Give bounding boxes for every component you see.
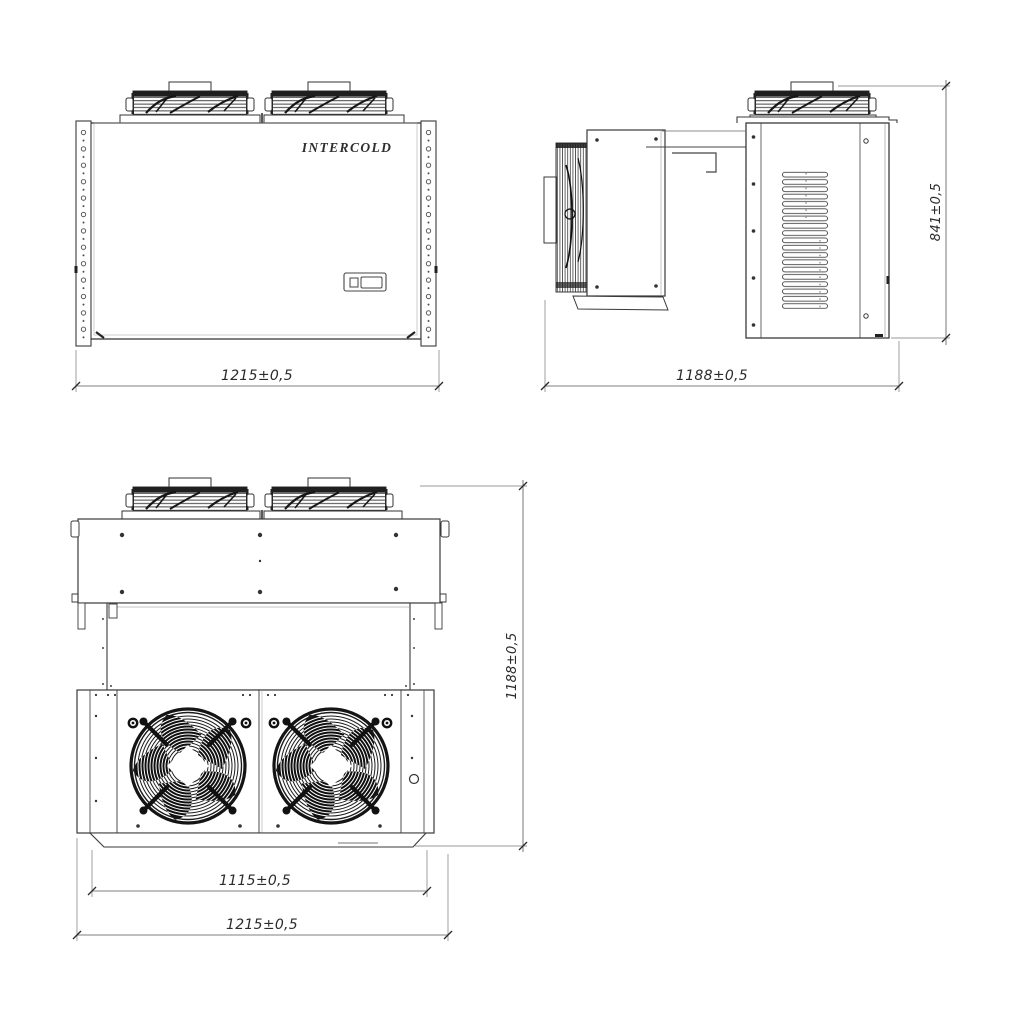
control-panel (344, 273, 386, 291)
dimension-plan-width: 1215±0,5 (73, 838, 452, 941)
evaporator-section (544, 130, 668, 310)
refrigerant-pipe-bend (672, 153, 716, 172)
drip-tray-side (573, 296, 668, 310)
plan-view: 1188±0,5 1115±0,5 1215±0,5 (71, 478, 527, 941)
technical-drawing-canvas: INTERCOLD 1215±0,5 (0, 0, 1024, 1024)
dim-side-depth-label: 1188±0,5 (676, 368, 748, 384)
dim-side-height-label: 841±0,5 (929, 183, 944, 241)
dimension-front-width: 1215±0,5 (72, 350, 443, 392)
dim-plan-depth-label: 1188±0,5 (505, 632, 520, 699)
louver-grille (782, 171, 828, 309)
mounting-bracket-left (75, 121, 92, 346)
drawing-sheet: INTERCOLD 1215±0,5 (0, 0, 1024, 1024)
dim-plan-width-label: 1215±0,5 (226, 917, 298, 933)
evaporator-panel (587, 130, 665, 296)
mounting-bracket-right (421, 121, 438, 346)
top-flange (737, 117, 897, 123)
axial-fan-top-profile (120, 82, 404, 127)
drain-hole (410, 775, 419, 784)
drip-tray-plan (90, 833, 426, 847)
dimension-plan-fan-section: 1115±0,5 (88, 850, 431, 897)
front-casing (90, 123, 421, 339)
dim-front-width-label: 1215±0,5 (221, 368, 293, 384)
middle-panel (107, 603, 410, 690)
front-view: INTERCOLD 1215±0,5 (72, 82, 443, 392)
dim-plan-fan-section-label: 1115±0,5 (219, 873, 291, 889)
brand-logo-text: INTERCOLD (301, 140, 393, 155)
axial-fan-top-profile-plan (122, 478, 402, 522)
side-view: 1188±0,5 841±0,5 (541, 80, 950, 392)
